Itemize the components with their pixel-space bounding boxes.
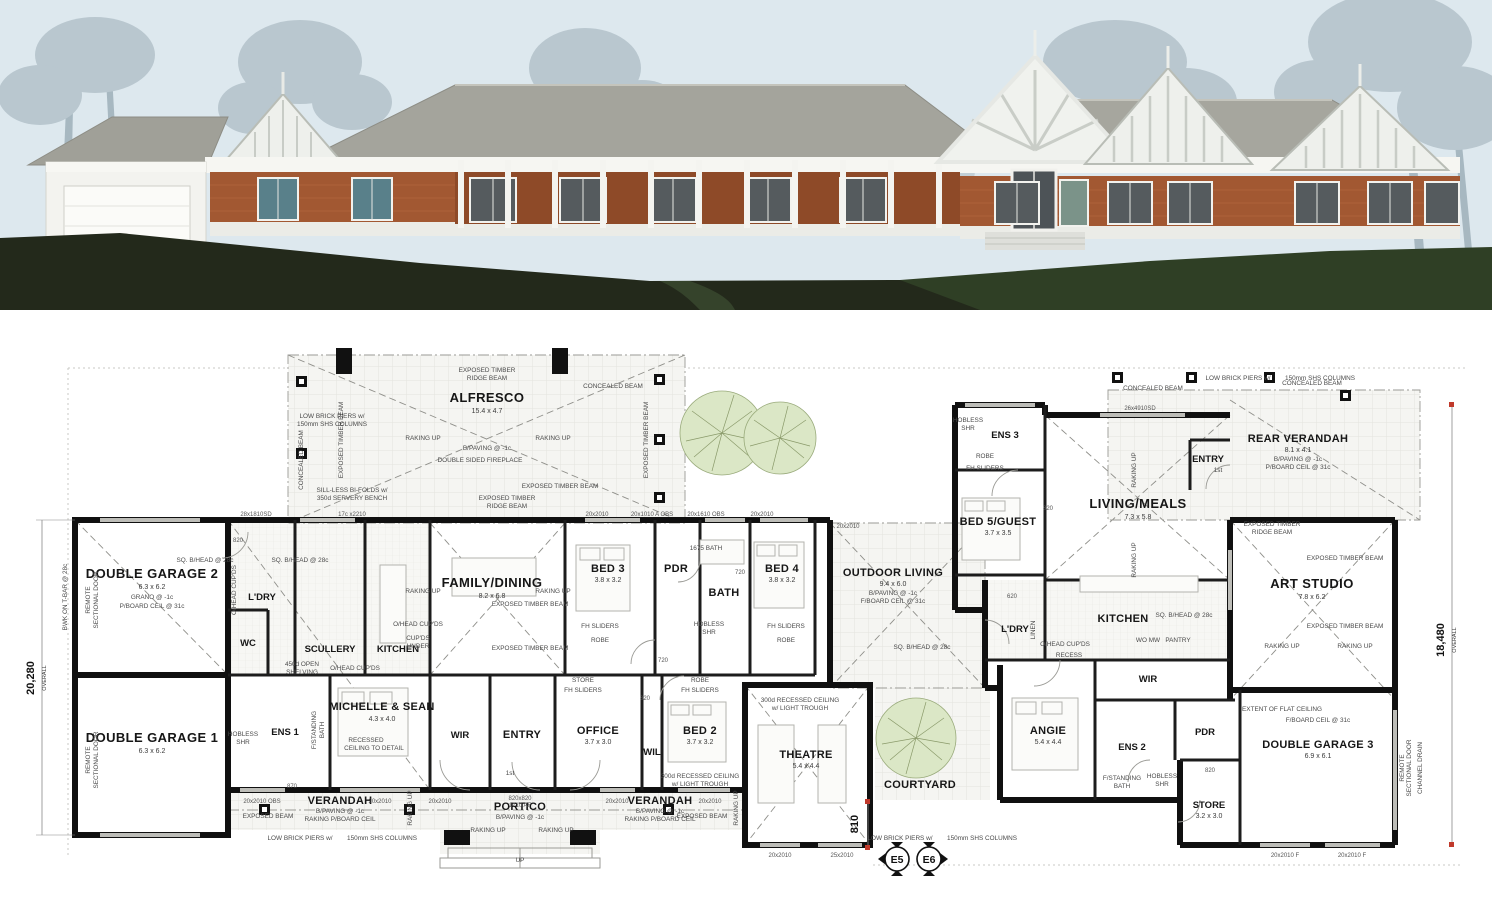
svg-text:RAKING UP: RAKING UP [535, 435, 570, 442]
room-pdr2: PDR [1195, 727, 1215, 738]
svg-text:BATH: BATH [319, 721, 326, 738]
room-wir2: WIR [1139, 674, 1158, 685]
svg-text:EXPOSED TIMBER BEAM: EXPOSED TIMBER BEAM [1307, 623, 1384, 630]
room-bed2: BED 2 [683, 725, 717, 737]
room-ldry: L'DRY [248, 592, 276, 603]
svg-text:RIDGE BEAM: RIDGE BEAM [1252, 529, 1292, 536]
svg-text:SECTIONAL DOOR: SECTIONAL DOOR [1406, 739, 1413, 796]
svg-text:820: 820 [233, 538, 244, 544]
svg-text:RAKING UP: RAKING UP [1131, 452, 1138, 487]
room-scullery: SCULLERY [305, 644, 357, 655]
svg-text:RAKING UP: RAKING UP [1131, 542, 1138, 577]
tree-icon [744, 402, 816, 474]
svg-text:EXPOSED TIMBER BEAM: EXPOSED TIMBER BEAM [643, 402, 650, 479]
svg-text:B/PAVING @ -1c: B/PAVING @ -1c [496, 814, 545, 821]
svg-text:F/STANDING: F/STANDING [1103, 775, 1141, 782]
svg-text:RAKING UP: RAKING UP [733, 790, 740, 825]
svg-text:RAKING UP: RAKING UP [535, 588, 570, 595]
svg-text:EXPOSED TIMBER BEAM: EXPOSED TIMBER BEAM [492, 645, 569, 652]
svg-text:B/PAVING @ -1c: B/PAVING @ -1c [869, 590, 918, 597]
svg-text:WO MW: WO MW [1136, 637, 1161, 644]
room-master: MICHELLE & SEAN [329, 701, 434, 713]
svg-text:SHELVING: SHELVING [286, 669, 318, 676]
svg-text:SHR: SHR [702, 629, 716, 636]
room-ens2: ENS 2 [1118, 742, 1145, 753]
svg-text:300d RECESSED CEILING: 300d RECESSED CEILING [761, 697, 840, 704]
svg-text:20x2010: 20x2010 [368, 799, 392, 805]
room-store: STORE [1193, 800, 1226, 811]
room-alfresco-dim: 15.4 x 4.7 [472, 408, 503, 415]
svg-text:1st: 1st [506, 770, 515, 777]
room-wil: WIL [643, 747, 661, 758]
svg-text:SECTIONAL DOOR: SECTIONAL DOOR [93, 731, 100, 788]
svg-text:8.1 x 4.1: 8.1 x 4.1 [1285, 447, 1312, 454]
svg-text:3.7 x 3.2: 3.7 x 3.2 [687, 739, 714, 746]
svg-text:20x1610 OBS: 20x1610 OBS [687, 512, 724, 518]
svg-text:EXPOSED TIMBER: EXPOSED TIMBER [479, 495, 536, 502]
svg-text:EXPOSED TIMBER: EXPOSED TIMBER [459, 367, 516, 374]
svg-text:3.8 x 3.2: 3.8 x 3.2 [595, 577, 622, 584]
svg-text:EXPOSED TIMBER BEAM: EXPOSED TIMBER BEAM [522, 483, 599, 490]
svg-text:w/ LIGHT TROUGH: w/ LIGHT TROUGH [771, 705, 829, 712]
svg-text:LOW BRICK PIERS w/: LOW BRICK PIERS w/ [868, 835, 933, 842]
svg-text:RAKING UP: RAKING UP [1337, 643, 1372, 650]
windows-left [258, 178, 886, 222]
svg-text:FH SLIDERS: FH SLIDERS [564, 687, 602, 694]
svg-text:CONCEALED BEAM: CONCEALED BEAM [298, 430, 305, 490]
svg-text:RECESS: RECESS [1056, 652, 1082, 659]
svg-text:RAKING UP: RAKING UP [470, 827, 505, 834]
svg-text:CEILING TO DETAIL: CEILING TO DETAIL [344, 745, 404, 752]
svg-text:P/BOARD CEIL @ 31c: P/BOARD CEIL @ 31c [1266, 464, 1332, 471]
svg-text:820: 820 [1205, 768, 1216, 774]
svg-text:LOW BRICK PIERS w/: LOW BRICK PIERS w/ [300, 413, 365, 420]
svg-text:RAKING UP: RAKING UP [538, 827, 573, 834]
room-garage2: DOUBLE GARAGE 2 [86, 566, 218, 581]
svg-text:LOW BRICK PIERS w/: LOW BRICK PIERS w/ [1206, 375, 1271, 382]
svg-text:BWK ON T-BAR @ 28c: BWK ON T-BAR @ 28c [62, 563, 69, 631]
svg-text:25x2010: 25x2010 [830, 853, 854, 859]
svg-text:F/STANDING: F/STANDING [311, 711, 318, 749]
room-wc: WC [240, 638, 256, 649]
svg-text:EXPOSED BEAM: EXPOSED BEAM [677, 813, 728, 820]
svg-text:P/BOARD CEIL @ 31c: P/BOARD CEIL @ 31c [120, 603, 186, 610]
svg-text:3.7 x 3.5: 3.7 x 3.5 [985, 530, 1012, 537]
svg-text:450d OPEN: 450d OPEN [285, 661, 319, 668]
svg-text:3.2 x 3.0: 3.2 x 3.0 [1196, 813, 1223, 820]
svg-text:SQ. B/HEAD @ 28c: SQ. B/HEAD @ 28c [1156, 612, 1214, 619]
svg-text:20x2010: 20x2010 [750, 512, 774, 518]
svg-text:RIDGE BEAM: RIDGE BEAM [467, 375, 507, 382]
svg-text:20x2010: 20x2010 [768, 853, 792, 859]
room-bed5: BED 5/GUEST [960, 516, 1037, 528]
svg-text:SHR: SHR [236, 739, 250, 746]
svg-text:1st: 1st [1214, 467, 1223, 474]
room-courtyard: COURTYARD [884, 779, 956, 791]
svg-text:RAKING P/BOARD CEIL: RAKING P/BOARD CEIL [304, 816, 375, 823]
svg-text:350d SERVERY BENCH: 350d SERVERY BENCH [317, 495, 388, 502]
svg-text:RAKING UP: RAKING UP [405, 435, 440, 442]
svg-text:UNDER: UNDER [407, 643, 430, 650]
svg-text:E5: E5 [891, 854, 904, 866]
svg-text:20x2010 OBS: 20x2010 OBS [243, 799, 280, 805]
svg-text:LINEN: LINEN [1030, 620, 1037, 639]
room-bed3: BED 3 [591, 563, 625, 575]
svg-text:O/HEAD CUP'DS: O/HEAD CUP'DS [231, 565, 238, 615]
svg-text:720: 720 [735, 570, 746, 576]
svg-text:RIDGE BEAM: RIDGE BEAM [487, 503, 527, 510]
room-alfresco: ALFRESCO [450, 390, 525, 405]
svg-text:20x2010: 20x2010 [605, 799, 629, 805]
room-garage2-dim: 6.3 x 6.2 [139, 584, 166, 591]
svg-text:EXPOSED BEAM: EXPOSED BEAM [243, 813, 294, 820]
svg-text:LOW BRICK PIERS w/: LOW BRICK PIERS w/ [268, 835, 333, 842]
svg-text:O/HEAD CUP'DS: O/HEAD CUP'DS [330, 665, 380, 672]
svg-text:5.4 x 4.4: 5.4 x 4.4 [793, 763, 820, 770]
svg-text:OVERALL: OVERALL [1452, 627, 1458, 652]
svg-text:FH SLIDERS: FH SLIDERS [767, 623, 805, 630]
room-family-dining-dim: 8.2 x 6.8 [479, 593, 506, 600]
svg-text:REMOTE: REMOTE [85, 586, 92, 613]
room-family-dining: FAMILY/DINING [442, 575, 543, 590]
room-entry2: ENTRY [1192, 454, 1225, 465]
svg-text:CHANNEL DRAIN: CHANNEL DRAIN [1417, 742, 1424, 794]
svg-text:3.7 x 3.0: 3.7 x 3.0 [585, 739, 612, 746]
svg-text:DOUBLE SIDED FIREPLACE: DOUBLE SIDED FIREPLACE [438, 457, 523, 464]
svg-text:EXPOSED TIMBER BEAM: EXPOSED TIMBER BEAM [492, 601, 569, 608]
svg-text:820x820: 820x820 [508, 796, 532, 802]
room-bed4: BED 4 [765, 563, 799, 575]
room-garage1: DOUBLE GARAGE 1 [86, 730, 218, 745]
svg-text:SQ. B/HEAD @ 28c: SQ. B/HEAD @ 28c [894, 644, 952, 651]
svg-text:EXPOSED TIMBER: EXPOSED TIMBER [1244, 521, 1301, 528]
svg-text:BATH: BATH [1114, 783, 1131, 790]
svg-text:HOBLESS: HOBLESS [694, 621, 724, 628]
svg-text:HOBLESS: HOBLESS [953, 417, 983, 424]
svg-text:26x4910SD: 26x4910SD [1124, 406, 1156, 412]
svg-text:SECTIONAL DOOR: SECTIONAL DOOR [93, 571, 100, 628]
svg-text:FH SLIDERS: FH SLIDERS [581, 623, 619, 630]
svg-text:150mm SHS COLUMNS: 150mm SHS COLUMNS [947, 835, 1017, 842]
svg-text:REMOTE: REMOTE [85, 746, 92, 773]
svg-text:SHR: SHR [961, 425, 975, 432]
room-ldry2: L'DRY [1001, 624, 1029, 635]
svg-text:150mm SHS COLUMNS: 150mm SHS COLUMNS [1285, 375, 1355, 382]
svg-text:RAKING UP: RAKING UP [405, 588, 440, 595]
svg-text:20x2010 F: 20x2010 F [1338, 853, 1367, 859]
svg-text:18,480: 18,480 [1435, 623, 1447, 657]
svg-text:RAKING UP: RAKING UP [407, 790, 414, 825]
svg-text:300d RECESSED CEILING: 300d RECESSED CEILING [661, 773, 740, 780]
svg-text:UP: UP [516, 857, 525, 864]
svg-text:20x2010 F: 20x2010 F [1271, 853, 1300, 859]
svg-text:28x1810SD: 28x1810SD [240, 512, 272, 518]
room-pdr: PDR [664, 563, 688, 575]
room-rear-verandah: REAR VERANDAH [1248, 433, 1348, 445]
svg-text:820: 820 [1043, 506, 1054, 512]
svg-text:E6: E6 [923, 854, 936, 866]
svg-text:EXTENT OF FLAT CEILING: EXTENT OF FLAT CEILING [1242, 706, 1322, 713]
svg-text:STORE: STORE [572, 677, 594, 684]
svg-text:F/BOARD CEIL @ 31c: F/BOARD CEIL @ 31c [1286, 717, 1351, 724]
svg-text:CONCEALED BEAM: CONCEALED BEAM [583, 383, 643, 390]
svg-text:20x2010: 20x2010 [428, 799, 452, 805]
room-garage1-dim: 6.3 x 6.2 [139, 748, 166, 755]
svg-text:4.3 x 4.0: 4.3 x 4.0 [369, 716, 396, 723]
svg-text:20x1010 A OBS: 20x1010 A OBS [631, 512, 673, 518]
svg-text:REMOTE: REMOTE [1399, 754, 1406, 781]
room-outdoor-living: OUTDOOR LIVING [843, 567, 943, 579]
svg-text:O/HEAD CUP'DS: O/HEAD CUP'DS [393, 621, 443, 628]
svg-text:1710 AF: 1710 AF [509, 803, 532, 809]
svg-text:FH SLIDERS: FH SLIDERS [681, 687, 719, 694]
room-angie: ANGIE [1030, 725, 1066, 737]
tree-icon [876, 698, 956, 778]
svg-text:F/BOARD CEIL @ 31c: F/BOARD CEIL @ 31c [861, 598, 926, 605]
svg-text:17c x2210: 17c x2210 [338, 512, 366, 518]
svg-text:ROBE: ROBE [691, 677, 709, 684]
svg-text:870: 870 [287, 784, 298, 790]
svg-text:20,280: 20,280 [25, 661, 37, 695]
svg-text:GRANO @ -1c: GRANO @ -1c [131, 594, 174, 601]
room-living-meals: LIVING/MEALS [1089, 496, 1186, 511]
svg-text:ROBE: ROBE [976, 453, 994, 460]
svg-text:20x2010: 20x2010 [836, 524, 860, 530]
svg-text:PANTRY: PANTRY [1165, 637, 1191, 644]
svg-text:SQ. B/HEAD @ 28c: SQ. B/HEAD @ 28c [272, 557, 330, 564]
room-ens3: ENS 3 [991, 430, 1018, 441]
svg-text:3.8 x 3.2: 3.8 x 3.2 [769, 577, 796, 584]
room-wir: WIR [451, 730, 470, 741]
room-ens1: ENS 1 [271, 727, 299, 738]
svg-text:w/ LIGHT TROUGH: w/ LIGHT TROUGH [671, 781, 729, 788]
room-office: OFFICE [577, 725, 619, 737]
room-theatre: THEATRE [779, 749, 832, 761]
svg-text:20x2010: 20x2010 [585, 512, 609, 518]
svg-text:CONCEALED BEAM: CONCEALED BEAM [1123, 385, 1183, 392]
elevation-render [0, 0, 1492, 310]
svg-text:620: 620 [1007, 594, 1018, 600]
svg-text:7.8 x 6.2: 7.8 x 6.2 [1299, 594, 1326, 601]
svg-text:820: 820 [640, 696, 651, 702]
room-garage3: DOUBLE GARAGE 3 [1262, 739, 1373, 751]
svg-text:O/HEAD CUP'DS: O/HEAD CUP'DS [1040, 641, 1090, 648]
svg-text:CUP'DS: CUP'DS [406, 635, 430, 642]
svg-text:9.4 x 6.0: 9.4 x 6.0 [880, 581, 907, 588]
room-verandah-1: VERANDAH [308, 795, 373, 807]
room-art-studio: ART STUDIO [1270, 576, 1353, 591]
room-entry: ENTRY [503, 729, 542, 741]
svg-text:B/PAVING @ -1c: B/PAVING @ -1c [316, 808, 365, 815]
room-bath: BATH [709, 587, 740, 599]
svg-text:20x2010: 20x2010 [698, 799, 722, 805]
svg-text:FH SLIDERS: FH SLIDERS [966, 465, 1004, 472]
svg-text:150mm SHS COLUMNS: 150mm SHS COLUMNS [297, 421, 367, 428]
architectural-sheet: ALFRESCO 15.4 x 4.7 FAMILY/DINING 8.2 x … [0, 0, 1492, 899]
floor-plan: ALFRESCO 15.4 x 4.7 FAMILY/DINING 8.2 x … [0, 310, 1492, 899]
svg-text:RAKING UP: RAKING UP [1264, 643, 1299, 650]
svg-text:EXPOSED TIMBER BEAM: EXPOSED TIMBER BEAM [1307, 555, 1384, 562]
svg-text:B/PAVING @ -1c: B/PAVING @ -1c [1274, 456, 1323, 463]
svg-text:SHR: SHR [1155, 781, 1169, 788]
room-kitchen2: KITCHEN [1098, 613, 1149, 625]
svg-text:150mm SHS COLUMNS: 150mm SHS COLUMNS [347, 835, 417, 842]
svg-text:810: 810 [849, 815, 861, 833]
svg-text:RECESSED: RECESSED [348, 737, 384, 744]
svg-text:7.3 x 5.8: 7.3 x 5.8 [1125, 514, 1152, 521]
svg-text:720: 720 [658, 658, 669, 664]
svg-text:1675 BATH: 1675 BATH [690, 545, 723, 552]
svg-text:B/PAVING @ -1c: B/PAVING @ -1c [463, 445, 512, 452]
room-verandah-2: VERANDAH [628, 795, 693, 807]
svg-text:SILL-LESS BI-FOLDS w/: SILL-LESS BI-FOLDS w/ [316, 487, 387, 494]
svg-text:HOBLESS: HOBLESS [228, 731, 258, 738]
svg-text:ROBE: ROBE [591, 637, 609, 644]
svg-text:OVERALL: OVERALL [42, 665, 48, 690]
svg-text:ROBE: ROBE [777, 637, 795, 644]
svg-text:5.4 x 4.4: 5.4 x 4.4 [1035, 739, 1062, 746]
svg-text:6.9 x 6.1: 6.9 x 6.1 [1305, 753, 1332, 760]
svg-text:SQ. B/HEAD @ 28c: SQ. B/HEAD @ 28c [177, 557, 235, 564]
svg-text:HOBLESS: HOBLESS [1147, 773, 1177, 780]
